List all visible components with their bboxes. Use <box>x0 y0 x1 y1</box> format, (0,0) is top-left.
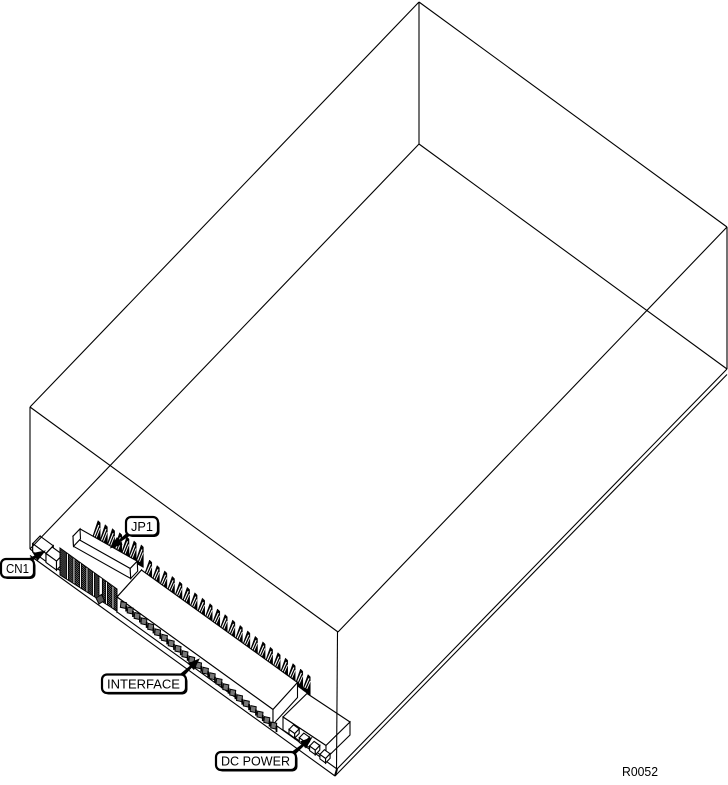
svg-text:JP1: JP1 <box>131 519 153 534</box>
svg-text:DC POWER: DC POWER <box>221 754 290 769</box>
svg-text:INTERFACE: INTERFACE <box>107 677 180 692</box>
svg-text:CN1: CN1 <box>6 561 29 576</box>
svg-text:R0052: R0052 <box>622 764 658 779</box>
